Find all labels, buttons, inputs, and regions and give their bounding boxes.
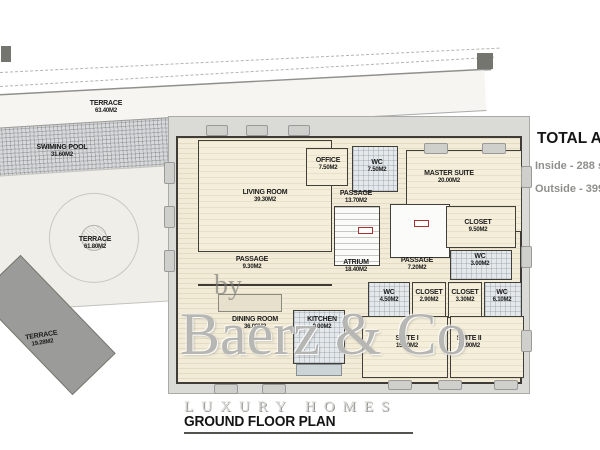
balcony-tab [262,384,286,394]
watermark-by: by [214,270,242,302]
balcony-tab [521,330,532,352]
column-block-left [1,46,11,62]
room-label-wc-suite: WC 6.10M2 [493,289,512,304]
balcony-tab [164,206,175,228]
door-marker-bath [414,220,429,227]
plan-title-underline [184,432,413,434]
totals-title: TOTAL AREAS [537,130,600,148]
room-label-passage-right: PASSAGE 7.20M2 [401,257,433,272]
plan-title: GROUND FLOOR PLAN [184,414,335,430]
room-label-terrace-mid: TERRACE 61.80M2 [79,236,111,251]
balcony-tab [521,246,532,268]
balcony-tab [388,380,412,390]
totals-outside: Outside - 399 sqm [535,183,600,195]
door-marker-atrium [358,227,373,234]
column-block-right [477,53,493,69]
totals-inside: Inside - 288 sqm [535,160,600,172]
master-bath-room [390,204,450,258]
balcony-tab [288,125,310,136]
room-label-living-room: LIVING ROOM 39.30M2 [243,189,288,204]
watermark-brand: Baerz & Co [180,300,467,369]
room-label-wc-right: WC 3.00M2 [471,253,490,268]
balcony-tab [164,250,175,272]
room-label-terrace-top: TERRACE 63.40M2 [90,100,122,115]
room-label-master-suite: MASTER SUITE 20.00M2 [424,170,474,185]
balcony-tab [494,380,518,390]
balcony-tab [521,166,532,188]
balcony-tab [438,380,462,390]
room-label-closet-master: CLOSET 9.50M2 [464,219,491,234]
balcony-tab [206,125,228,136]
floor-plan-canvas: TERRACE 63.40M2 SWIMING POOL 31.60M2 TER… [0,0,600,450]
atrium-stair [334,206,380,266]
room-label-atrium: ATRIUM 18.40M2 [343,259,369,274]
room-label-wc-top: WC 7.50M2 [368,159,387,174]
room-label-swimming-pool: SWIMING POOL 31.60M2 [37,144,88,159]
balcony-tab [214,384,238,394]
room-label-passage-left: PASSAGE 9.30M2 [236,256,268,271]
balcony-tab [482,143,506,154]
balcony-tab [246,125,268,136]
room-label-office: OFFICE 7.50M2 [316,157,340,172]
balcony-tab [164,162,175,184]
room-label-passage-top: PASSAGE 13.70M2 [340,190,372,205]
balcony-tab [424,143,448,154]
